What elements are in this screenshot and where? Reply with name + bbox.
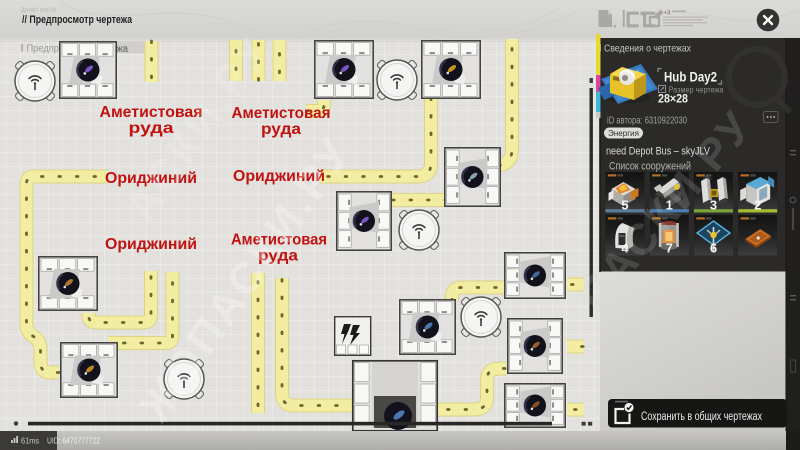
svg-text:2: 2 — [754, 198, 761, 213]
svg-text:Сохранить в общих чертежах: Сохранить в общих чертежах — [641, 411, 762, 423]
svg-text:UID: 6470777722: UID: 6470777722 — [47, 437, 100, 446]
svg-text:61ms: 61ms — [21, 437, 39, 446]
svg-text:Энергия: Энергия — [608, 129, 639, 138]
svg-text:‖ Сведения о чертежах: ‖ Сведения о чертежах — [598, 43, 692, 55]
svg-text:Аметистовая: Аметистовая — [232, 105, 331, 122]
svg-text:5: 5 — [621, 198, 628, 213]
svg-text:+3: +3 — [664, 11, 672, 17]
svg-text:Драфт-вер 03: Драфт-вер 03 — [21, 8, 56, 14]
svg-text:6: 6 — [710, 241, 717, 256]
svg-text:iD автора: 6310922030: iD автора: 6310922030 — [607, 116, 687, 127]
svg-text:Ориджиний: Ориджиний — [105, 236, 197, 253]
svg-text:руда: руда — [261, 121, 301, 138]
svg-text:// Предпросмотр чертежа: // Предпросмотр чертежа — [22, 14, 133, 26]
svg-text:3: 3 — [710, 198, 717, 213]
svg-text:28×28: 28×28 — [658, 92, 688, 106]
svg-text:Hub Day2: Hub Day2 — [664, 69, 717, 85]
